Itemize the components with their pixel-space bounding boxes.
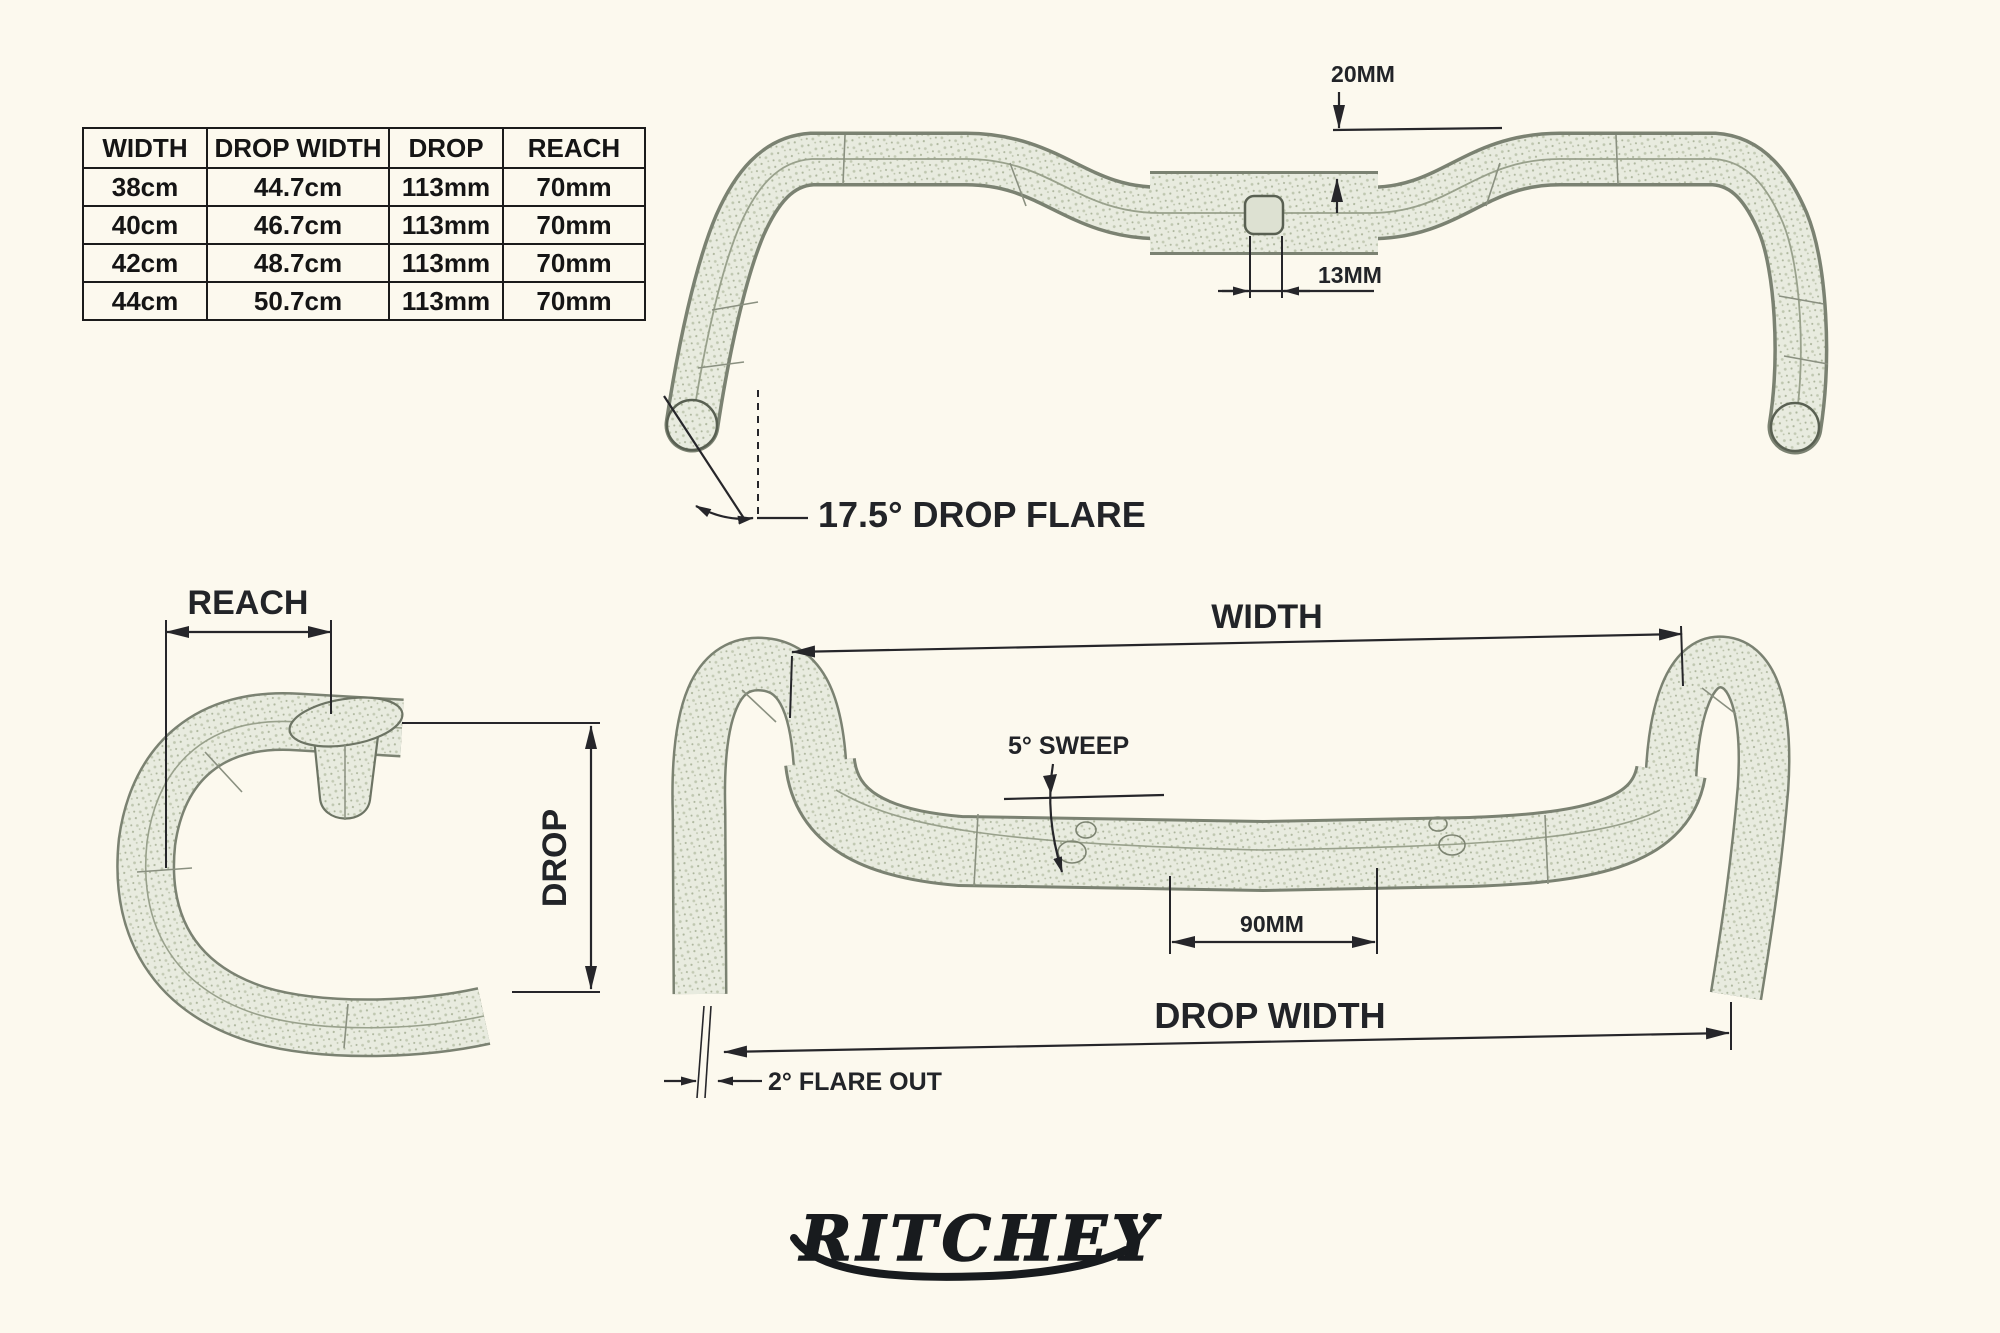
dim-13mm-label: 13MM xyxy=(1318,262,1382,288)
front-view-sketch xyxy=(699,662,1764,996)
spec-cell: 46.7cm xyxy=(207,206,389,244)
spec-cell: 50.7cm xyxy=(207,282,389,320)
spec-table-header-row: WIDTH DROP WIDTH DROP REACH xyxy=(83,128,645,168)
registered-mark-dot xyxy=(1143,1213,1153,1223)
spec-cell: 70mm xyxy=(503,244,645,282)
dim-reach-label: REACH xyxy=(188,584,309,622)
spec-cell: 48.7cm xyxy=(207,244,389,282)
spec-cell: 70mm xyxy=(503,168,645,206)
spec-row-42: 42cm 48.7cm 113mm 70mm xyxy=(83,244,645,282)
left-bar-end-cap xyxy=(667,400,717,450)
spec-header-drop: DROP xyxy=(389,128,503,168)
spec-cell: 70mm xyxy=(503,206,645,244)
spec-cell: 40cm xyxy=(83,206,207,244)
spec-cell: 42cm xyxy=(83,244,207,282)
ritchey-logo-text: RITCHEY xyxy=(798,1202,1162,1275)
dim-flare-out-label: 2° FLARE OUT xyxy=(768,1068,942,1096)
dim-flare-out: 2° FLARE OUT xyxy=(664,1006,942,1098)
dim-drop: DROP xyxy=(402,723,600,992)
dim-drop-label: DROP xyxy=(536,809,574,907)
spec-cell: 44.7cm xyxy=(207,168,389,206)
spec-cell: 113mm xyxy=(389,282,503,320)
ritchey-logo: RITCHEY xyxy=(794,1202,1162,1277)
top-view-sketch xyxy=(667,135,1828,451)
spec-cell: 38cm xyxy=(83,168,207,206)
dim-drop-width-label: DROP WIDTH xyxy=(1154,995,1385,1036)
dim-90mm-label: 90MM xyxy=(1240,911,1304,937)
dim-width-label: WIDTH xyxy=(1211,598,1322,636)
dim-drop-width: DROP WIDTH xyxy=(724,995,1731,1052)
spec-header-reach: REACH xyxy=(503,128,645,168)
spec-header-width: WIDTH xyxy=(83,128,207,168)
spec-cell: 44cm xyxy=(83,282,207,320)
dim-20mm-label: 20MM xyxy=(1331,61,1395,87)
spec-row-38: 38cm 44.7cm 113mm 70mm xyxy=(83,168,645,206)
right-bar-end-cap xyxy=(1771,403,1819,451)
side-view-sketch xyxy=(137,690,484,1048)
spec-header-drop-width: DROP WIDTH xyxy=(207,128,389,168)
spec-row-44: 44cm 50.7cm 113mm 70mm xyxy=(83,282,645,320)
spec-cell: 113mm xyxy=(389,206,503,244)
spec-cell: 113mm xyxy=(389,168,503,206)
spec-cell: 113mm xyxy=(389,244,503,282)
scanned-handlebar-spec-sheet: 20MM 13MM 17.5° DROP FLARE RE xyxy=(0,0,2000,1333)
spec-row-40: 40cm 46.7cm 113mm 70mm xyxy=(83,206,645,244)
dim-width: WIDTH xyxy=(790,598,1683,718)
dim-sweep-label: 5° SWEEP xyxy=(1008,732,1129,760)
spec-table: WIDTH DROP WIDTH DROP REACH 38cm 44.7cm … xyxy=(82,127,646,321)
dim-drop-flare-label: 17.5° DROP FLARE xyxy=(818,494,1146,535)
dim-drop-flare: 17.5° DROP FLARE xyxy=(664,390,1146,535)
spec-cell: 70mm xyxy=(503,282,645,320)
stem-clamp-hole xyxy=(1245,196,1283,234)
